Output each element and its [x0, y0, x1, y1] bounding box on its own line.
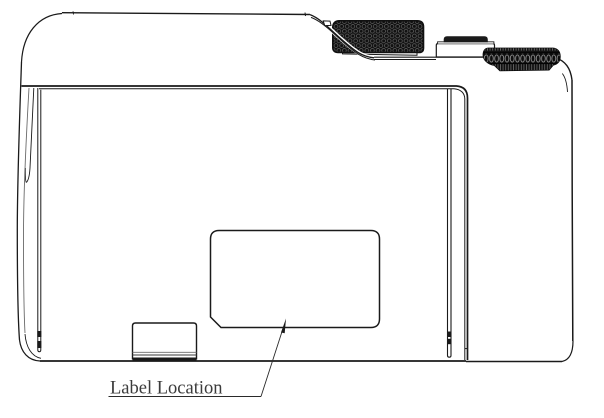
svg-text:Label Location: Label Location [110, 379, 223, 399]
